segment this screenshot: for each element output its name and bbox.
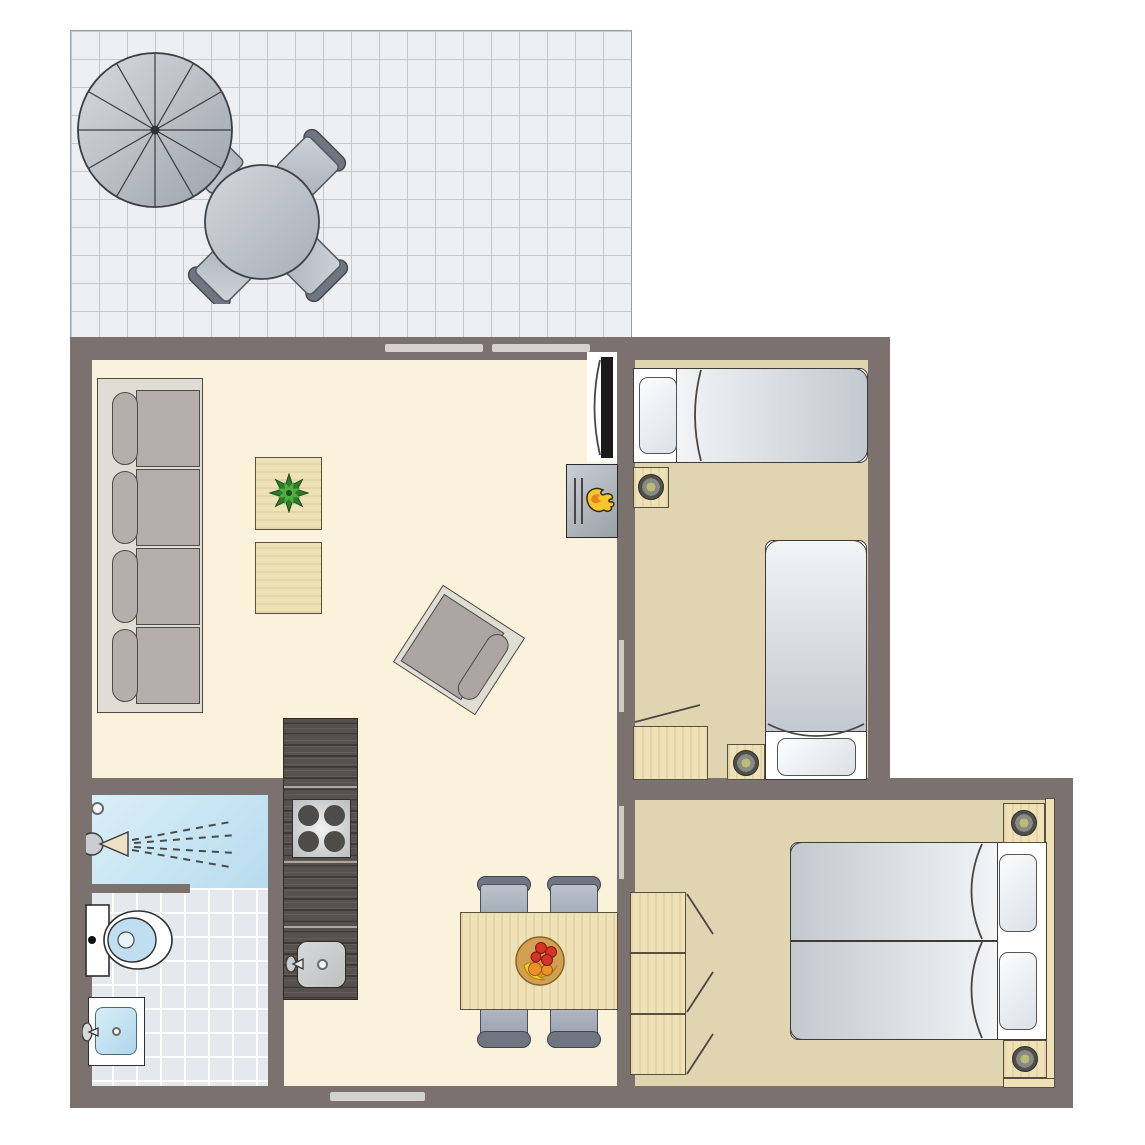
washbasin-faucet-icon (82, 1018, 102, 1046)
fruit-bowl (514, 935, 566, 987)
plant-icon (269, 473, 309, 513)
window-bottom (330, 1092, 425, 1101)
bed2-pillow (777, 738, 856, 776)
floor-plan (0, 0, 1145, 1145)
double-bed-pillow-1 (999, 854, 1037, 932)
sofa-seat-2 (136, 469, 200, 546)
sofa-back-3 (112, 550, 138, 623)
double-bed-duvet-1 (790, 842, 998, 941)
burner (298, 831, 319, 852)
bed1-lamp (638, 474, 664, 500)
sink-faucet-icon (286, 950, 306, 978)
wardrobe (630, 892, 686, 1075)
sink-drain (317, 959, 328, 970)
sofa-seat-4 (136, 627, 200, 704)
wall-left (70, 337, 92, 1108)
shower-drain (91, 802, 104, 815)
bedroom1-cabinet (633, 726, 708, 780)
shower-partition-stub (88, 884, 190, 893)
wall-bathroom-north (70, 778, 284, 795)
sofa-seat-1 (136, 390, 200, 467)
sliding-door-bedroom2 (619, 806, 624, 879)
double-bed-pillow-2 (999, 952, 1037, 1030)
bed1-pillow (639, 377, 677, 454)
bedroom2-lamp-top (1011, 810, 1037, 836)
window-top-1 (385, 344, 483, 352)
bed1-duvet (676, 368, 868, 463)
wall-bathroom-east (268, 778, 284, 1086)
sofa-seat-3 (136, 548, 200, 625)
counter-seam (284, 926, 357, 928)
burner (324, 805, 345, 826)
tv-screen (601, 357, 613, 458)
sofa-back-2 (112, 471, 138, 544)
burner (298, 805, 319, 826)
flame-icon (583, 483, 617, 517)
wardrobe-divider (630, 952, 686, 954)
headboard-panel-bottom (1003, 1078, 1055, 1088)
window-top-2 (492, 344, 590, 352)
washbasin-drain (112, 1027, 121, 1036)
bed2-lamp (733, 750, 759, 776)
wardrobe-divider (630, 1013, 686, 1015)
counter-seam (284, 861, 357, 863)
burner (324, 831, 345, 852)
coffee-table-2 (255, 542, 322, 614)
double-bed-duvet-2 (790, 941, 998, 1040)
bed2-duvet (765, 540, 867, 732)
shower-head-spray (86, 820, 248, 870)
toilet (84, 902, 178, 980)
wall-bottom (70, 1086, 1073, 1108)
counter-seam (284, 786, 357, 788)
fireplace-stove (566, 464, 618, 538)
stove-cooktop (292, 799, 351, 858)
fireplace-vent-line (574, 478, 576, 524)
sofa-back-4 (112, 629, 138, 702)
sliding-door-bedroom1 (619, 640, 624, 712)
sofa-back-1 (112, 392, 138, 465)
wall-bedroom2-north (617, 778, 1073, 800)
parasol (75, 50, 235, 210)
wall-right-bedroom1 (868, 337, 890, 782)
bedroom2-lamp-bottom (1012, 1046, 1038, 1072)
